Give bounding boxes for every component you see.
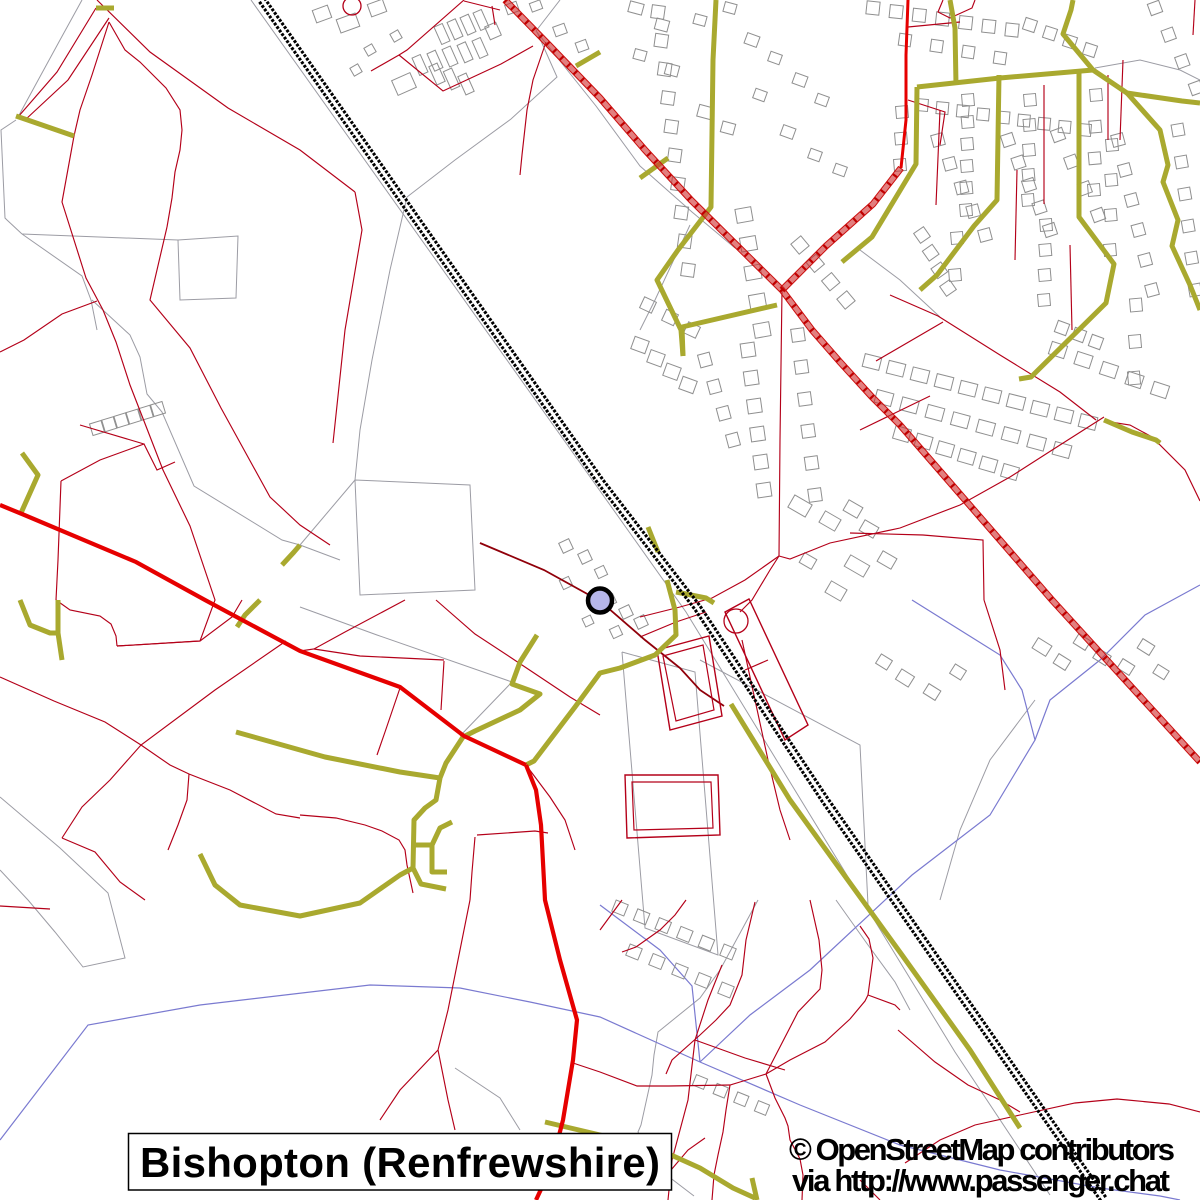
svg-text:via http://www.passenger.chat: via http://www.passenger.chat [792,1163,1170,1198]
svg-text:Bishopton (Renfrewshire): Bishopton (Renfrewshire) [140,1139,660,1186]
svg-text:© OpenStreetMap contributors: © OpenStreetMap contributors [789,1132,1175,1167]
